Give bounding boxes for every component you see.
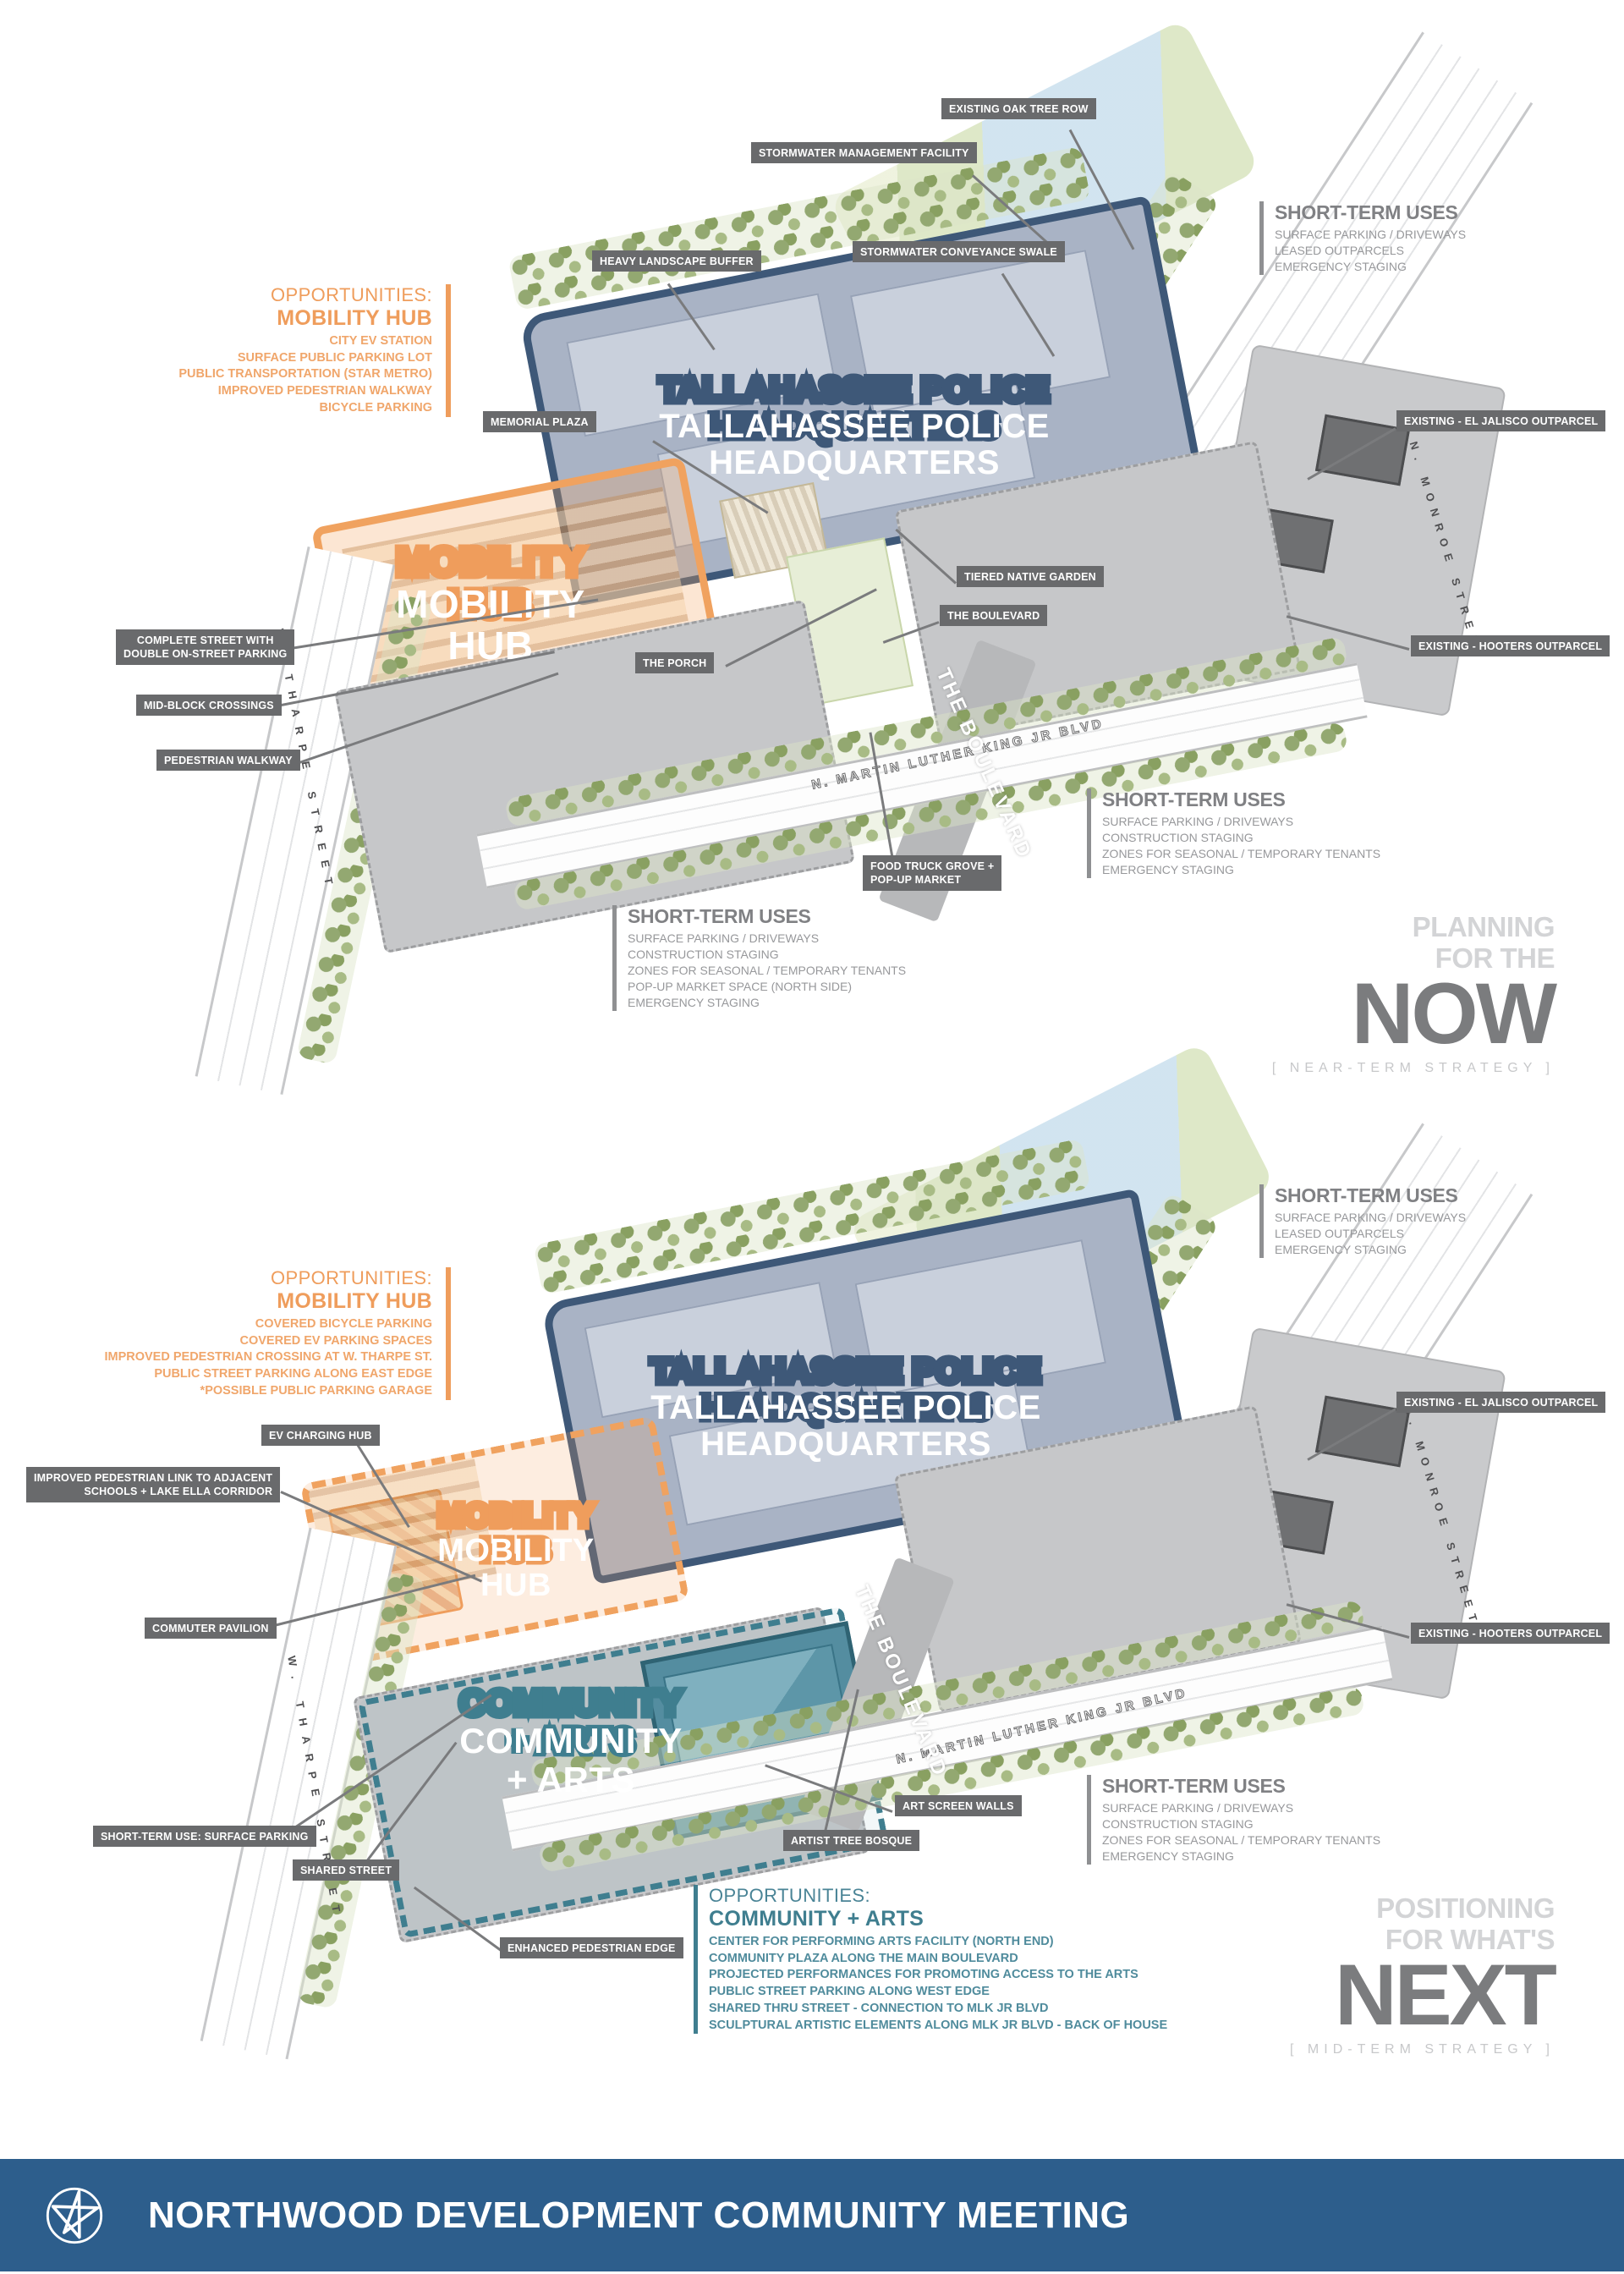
list-item: PUBLIC STREET PARKING ALONG WEST EDGE: [709, 1984, 1167, 2001]
label-food-truck-grove: FOOD TRUCK GROVE + POP-UP MARKET: [863, 855, 1001, 891]
list-item: COVERED BICYCLE PARKING: [104, 1316, 432, 1333]
strategy-tag: [ MID-TERM STRATEGY ]: [1290, 2042, 1555, 2057]
list-item: EMERGENCY STAGING: [1102, 1848, 1380, 1865]
list-item: ZONES FOR SEASONAL / TEMPORARY TENANTS: [628, 963, 906, 979]
label-shared-street: SHARED STREET: [293, 1859, 399, 1881]
strategy-tag: [ NEAR-TERM STRATEGY ]: [1272, 1061, 1555, 1076]
opportunities-kicker: OPPORTUNITIES:: [178, 284, 432, 306]
list-item: CONSTRUCTION STAGING: [1102, 1816, 1380, 1832]
label-heavy-landscape-buffer: HEAVY LANDSCAPE BUFFER: [592, 250, 761, 272]
list-item: LEASED OUTPARCELS: [1275, 1226, 1466, 1242]
strategy-big-word: NOW: [1272, 975, 1555, 1054]
police-hq-title-fill: TALLAHASSEE POLICE HEADQUARTERS: [650, 1389, 1041, 1463]
strategy-big-word: NEXT: [1290, 1956, 1555, 2035]
strategy-line: PLANNING: [1272, 912, 1555, 943]
short-term-uses-northeast: SHORT-TERM USES SURFACE PARKING / DRIVEW…: [1259, 1184, 1466, 1258]
list-item: EMERGENCY STAGING: [628, 995, 906, 1011]
list-item: BICYCLE PARKING: [178, 400, 432, 417]
community-arts-title-fill: COMMUNITY + ARTS: [459, 1721, 682, 1799]
label-el-jalisco-outparcel: EXISTING - EL JALISCO OUTPARCEL: [1396, 1392, 1605, 1413]
list-item: SHARED THRU STREET - CONNECTION TO MLK J…: [709, 2001, 1167, 2018]
list-item: CONSTRUCTION STAGING: [628, 947, 906, 963]
police-hq-title: TALLAHASSEE POLICE HEADQUARTERSTALLAHASS…: [651, 372, 1057, 482]
short-term-uses-southeast: SHORT-TERM USES SURFACE PARKING / DRIVEW…: [1087, 1775, 1380, 1865]
opportunities-kicker: OPPORTUNITIES:: [709, 1885, 1167, 1907]
list-item: SURFACE PARKING / DRIVEWAYS: [1102, 1800, 1380, 1816]
opportunities-kicker: OPPORTUNITIES:: [104, 1267, 432, 1289]
short-term-uses-title: SHORT-TERM USES: [1102, 788, 1380, 811]
list-item: EMERGENCY STAGING: [1102, 862, 1380, 878]
list-item: SURFACE PARKING / DRIVEWAYS: [1275, 227, 1466, 243]
label-pedestrian-walkway: PEDESTRIAN WALKWAY: [156, 750, 300, 771]
label-existing-oak-tree-row: EXISTING OAK TREE ROW: [941, 98, 1096, 119]
label-stormwater-management-facility: STORMWATER MANAGEMENT FACILITY: [751, 142, 977, 163]
short-term-uses-title: SHORT-TERM USES: [1275, 1184, 1466, 1207]
list-item: ZONES FOR SEASONAL / TEMPORARY TENANTS: [1102, 846, 1380, 862]
list-item: IMPROVED PEDESTRIAN WALKWAY: [178, 383, 432, 400]
label-enhanced-pedestrian-edge: ENHANCED PEDESTRIAN EDGE: [500, 1937, 683, 1958]
opportunities-title: COMMUNITY + ARTS: [709, 1907, 1167, 1931]
list-item: CENTER FOR PERFORMING ARTS FACILITY (NOR…: [709, 1934, 1167, 1951]
label-mid-block-crossings: MID-BLOCK CROSSINGS: [136, 695, 282, 716]
label-hooters-outparcel: EXISTING - HOOTERS OUTPARCEL: [1411, 1623, 1610, 1644]
opportunities-mobility-hub-list: OPPORTUNITIES: MOBILITY HUB COVERED BICY…: [104, 1267, 451, 1400]
list-item: SCULPTURAL ARTISTIC ELEMENTS ALONG MLK J…: [709, 2018, 1167, 2035]
mobility-hub-title-fill: MOBILITY HUB: [437, 1533, 595, 1603]
list-item: POP-UP MARKET SPACE (NORTH SIDE): [628, 979, 906, 995]
mobility-hub-title: MOBILITY HUBMOBILITY HUB: [406, 1499, 626, 1603]
label-art-screen-walls: ART SCREEN WALLS: [895, 1795, 1022, 1816]
label-tiered-native-garden: TIERED NATIVE GARDEN: [957, 566, 1104, 587]
list-item: LEASED OUTPARCELS: [1275, 243, 1466, 259]
planning-poster: W. THARPE STREET N. MONROE STREET N. MAR…: [0, 0, 1624, 2274]
list-item: SURFACE PARKING / DRIVEWAYS: [628, 931, 906, 947]
label-el-jalisco-outparcel: EXISTING - EL JALISCO OUTPARCEL: [1396, 410, 1605, 431]
strategy-line: POSITIONING: [1290, 1893, 1555, 1925]
list-item: PUBLIC STREET PARKING ALONG EAST EDGE: [104, 1366, 432, 1383]
strategy-title-near-term: PLANNING FOR THE NOW [ NEAR-TERM STRATEG…: [1272, 912, 1555, 1076]
opportunities-title: MOBILITY HUB: [178, 306, 432, 331]
label-ev-charging-hub: EV CHARGING HUB: [261, 1425, 380, 1446]
short-term-uses-title: SHORT-TERM USES: [1275, 201, 1466, 224]
list-item: EMERGENCY STAGING: [1275, 1242, 1466, 1258]
police-hq-title-fill: TALLAHASSEE POLICE HEADQUARTERS: [659, 408, 1050, 481]
strategy-title-mid-term: POSITIONING FOR WHAT'S NEXT [ MID-TERM S…: [1290, 1893, 1555, 2057]
list-item: SURFACE PARKING / DRIVEWAYS: [1275, 1210, 1466, 1226]
footer-bar: NORTHWOOD DEVELOPMENT COMMUNITY MEETING …: [0, 2159, 1624, 2271]
short-term-uses-title: SHORT-TERM USES: [1102, 1775, 1380, 1798]
mobility-hub-title: MOBILITY HUBMOBILITY HUB: [355, 541, 626, 667]
label-complete-street: COMPLETE STREET WITH DOUBLE ON-STREET PA…: [116, 629, 294, 665]
footer-title: NORTHWOOD DEVELOPMENT COMMUNITY MEETING: [148, 2194, 1129, 2237]
short-term-uses-title: SHORT-TERM USES: [628, 905, 906, 928]
label-pedestrian-link: IMPROVED PEDESTRIAN LINK TO ADJACENT SCH…: [26, 1467, 280, 1502]
list-item: SURFACE PARKING / DRIVEWAYS: [1102, 814, 1380, 830]
short-term-uses-northeast: SHORT-TERM USES SURFACE PARKING / DRIVEW…: [1259, 201, 1466, 275]
label-memorial-plaza: MEMORIAL PLAZA: [483, 411, 596, 432]
list-item: SURFACE PUBLIC PARKING LOT: [178, 350, 432, 367]
label-the-boulevard: THE BOULEVARD: [940, 605, 1047, 626]
northwood-star-logo-icon: [44, 2185, 105, 2246]
label-hooters-outparcel: EXISTING - HOOTERS OUTPARCEL: [1411, 635, 1610, 656]
list-item: CONSTRUCTION STAGING: [1102, 830, 1380, 846]
list-item: COVERED EV PARKING SPACES: [104, 1333, 432, 1350]
label-artist-tree-bosque: ARTIST TREE BOSQUE: [783, 1830, 919, 1851]
opportunities-mobility-hub-list: OPPORTUNITIES: MOBILITY HUB CITY EV STAT…: [178, 284, 451, 417]
short-term-uses-southeast: SHORT-TERM USES SURFACE PARKING / DRIVEW…: [1087, 788, 1380, 878]
list-item: PUBLIC TRANSPORTATION (STAR METRO): [178, 366, 432, 383]
list-item: EMERGENCY STAGING: [1275, 259, 1466, 275]
short-term-uses-southwest: SHORT-TERM USES SURFACE PARKING / DRIVEW…: [612, 905, 906, 1011]
list-item: CITY EV STATION: [178, 333, 432, 350]
list-item: COMMUNITY PLAZA ALONG THE MAIN BOULEVARD: [709, 1951, 1167, 1968]
label-the-porch: THE PORCH: [635, 652, 714, 673]
list-item: ZONES FOR SEASONAL / TEMPORARY TENANTS: [1102, 1832, 1380, 1848]
list-item: PROJECTED PERFORMANCES FOR PROMOTING ACC…: [709, 1967, 1167, 1984]
police-hq-title: TALLAHASSEE POLICE HEADQUARTERSTALLAHASS…: [643, 1354, 1049, 1464]
label-commuter-pavilion: COMMUTER PAVILION: [145, 1618, 277, 1639]
list-item: IMPROVED PEDESTRIAN CROSSING AT W. THARP…: [104, 1349, 432, 1366]
list-item: *POSSIBLE PUBLIC PARKING GARAGE: [104, 1383, 432, 1400]
opportunities-community-arts-list: OPPORTUNITIES: COMMUNITY + ARTS CENTER F…: [694, 1885, 1167, 2034]
opportunities-title: MOBILITY HUB: [104, 1289, 432, 1314]
mobility-hub-title-fill: MOBILITY HUB: [396, 582, 585, 668]
label-short-term-surface-parking: SHORT-TERM USE: SURFACE PARKING: [93, 1826, 316, 1847]
label-stormwater-conveyance-swale: STORMWATER CONVEYANCE SWALE: [853, 241, 1065, 262]
